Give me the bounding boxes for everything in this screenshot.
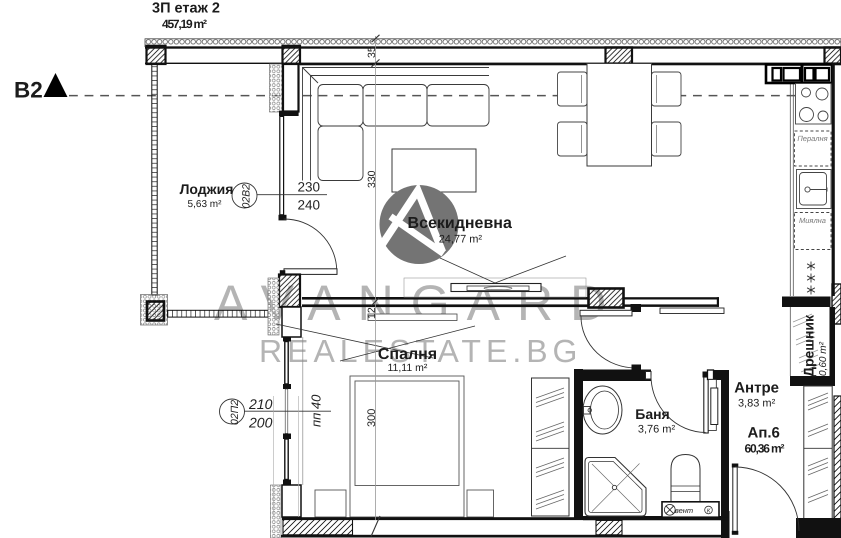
- svg-text:12: 12: [366, 307, 378, 319]
- svg-text:Спалня: Спалня: [378, 346, 437, 363]
- svg-text:200: 200: [248, 415, 273, 431]
- svg-text:пп 40: пп 40: [309, 394, 324, 427]
- svg-text:К: К: [707, 508, 711, 515]
- svg-text:35: 35: [366, 46, 378, 58]
- svg-text:02П2: 02П2: [229, 400, 241, 425]
- svg-text:0,60 m²: 0,60 m²: [818, 341, 829, 376]
- svg-text:11,11 m²: 11,11 m²: [387, 362, 427, 374]
- svg-text:24,77 m²: 24,77 m²: [439, 233, 483, 245]
- svg-text:5,63 m²: 5,63 m²: [188, 199, 223, 210]
- svg-text:300: 300: [366, 409, 378, 427]
- svg-text:B2: B2: [14, 78, 43, 103]
- svg-text:Ап.6: Ап.6: [747, 424, 779, 441]
- svg-text:60,36 m²: 60,36 m²: [745, 441, 785, 455]
- svg-text:Лоджия: Лоджия: [180, 181, 234, 197]
- svg-text:230: 230: [298, 180, 321, 195]
- svg-text:3П етаж 2: 3П етаж 2: [152, 1, 220, 17]
- svg-text:240: 240: [298, 198, 321, 213]
- svg-text:02В2: 02В2: [241, 184, 253, 209]
- svg-text:Пералня: Пералня: [797, 134, 827, 143]
- svg-text:210: 210: [248, 396, 273, 412]
- svg-text:Дрешник: Дрешник: [801, 314, 817, 377]
- svg-text:Всекидневна: Всекидневна: [408, 215, 512, 232]
- svg-text:330: 330: [366, 170, 378, 188]
- svg-text:вент: вент: [675, 506, 693, 515]
- svg-text:Баня: Баня: [635, 406, 669, 422]
- svg-text:3,76 m²: 3,76 m²: [638, 424, 676, 436]
- svg-text:3,83 m²: 3,83 m²: [738, 398, 776, 410]
- svg-text:Миялна: Миялна: [799, 216, 826, 225]
- svg-text:Антре: Антре: [734, 379, 779, 396]
- svg-text:457,19 m²: 457,19 m²: [162, 17, 207, 31]
